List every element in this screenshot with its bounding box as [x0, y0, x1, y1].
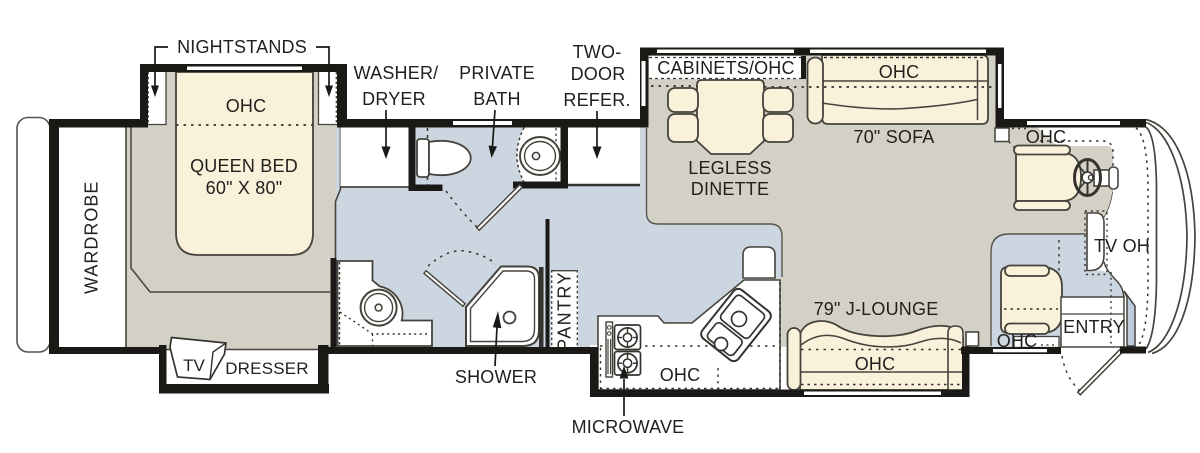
svg-text:TWO-: TWO-: [573, 42, 622, 62]
svg-text:LEGLESS: LEGLESS: [688, 158, 771, 178]
svg-text:DRYER: DRYER: [362, 89, 426, 109]
svg-text:PRIVATE: PRIVATE: [459, 63, 535, 83]
svg-text:DRESSER: DRESSER: [225, 359, 309, 378]
svg-text:QUEEN BED: QUEEN BED: [190, 156, 298, 176]
svg-text:TV OH: TV OH: [1094, 236, 1150, 256]
svg-text:OHC: OHC: [879, 62, 920, 82]
svg-text:60" X 80": 60" X 80": [206, 178, 283, 198]
svg-text:70" SOFA: 70" SOFA: [853, 127, 934, 147]
svg-text:WARDROBE: WARDROBE: [82, 181, 102, 294]
svg-text:ENTRY: ENTRY: [1063, 317, 1125, 337]
svg-text:OHC: OHC: [226, 96, 267, 116]
svg-text:79" J-LOUNGE: 79" J-LOUNGE: [814, 299, 939, 319]
svg-text:MICROWAVE: MICROWAVE: [572, 417, 685, 437]
svg-text:CABINETS/OHC: CABINETS/OHC: [657, 58, 794, 78]
svg-text:OHC: OHC: [855, 354, 896, 374]
svg-text:OHC: OHC: [660, 365, 701, 385]
svg-text:REFER.: REFER.: [563, 90, 630, 110]
svg-text:SHOWER: SHOWER: [455, 367, 537, 387]
svg-text:NIGHTSTANDS: NIGHTSTANDS: [177, 37, 307, 57]
svg-text:DOOR: DOOR: [571, 64, 626, 84]
svg-text:DINETTE: DINETTE: [691, 179, 769, 199]
svg-text:BATH: BATH: [473, 89, 520, 109]
svg-text:OHC: OHC: [1026, 127, 1067, 147]
svg-text:PANTRY: PANTRY: [555, 271, 575, 351]
svg-text:TV: TV: [183, 356, 205, 375]
svg-text:WASHER/: WASHER/: [354, 63, 439, 83]
